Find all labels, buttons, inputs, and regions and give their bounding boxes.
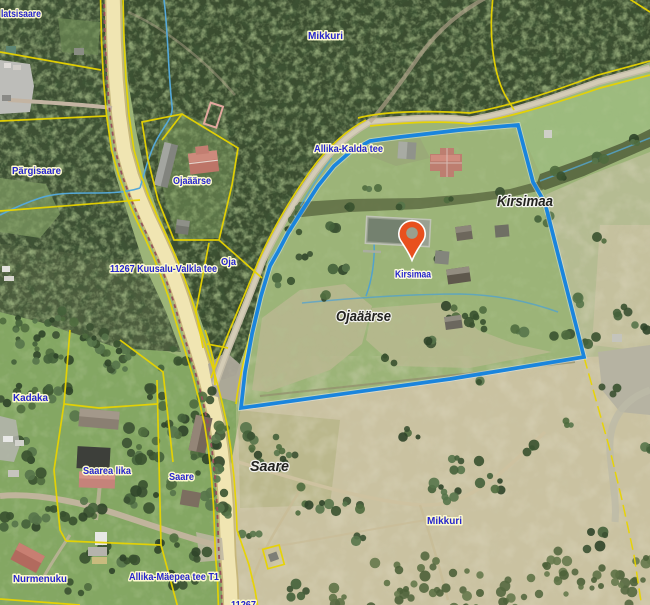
svg-text:Pärgisaare: Pärgisaare [12, 165, 61, 177]
svg-text:Kirsimaa: Kirsimaa [497, 193, 553, 210]
svg-text:Saarea lika: Saarea lika [83, 465, 131, 477]
svg-text:Ojaäärse: Ojaäärse [336, 308, 391, 325]
svg-text:11267: 11267 [231, 599, 256, 605]
svg-text:Nurmenuku: Nurmenuku [13, 573, 67, 585]
svg-text:Saare: Saare [169, 471, 194, 483]
svg-text:Allika-Kalda tee: Allika-Kalda tee [314, 143, 383, 155]
svg-text:Mikkuri: Mikkuri [308, 30, 343, 42]
svg-text:Oja: Oja [221, 256, 236, 268]
svg-text:Kirsimaa: Kirsimaa [395, 269, 431, 281]
svg-text:Saare: Saare [250, 458, 289, 475]
svg-text:Kadaka: Kadaka [13, 392, 48, 404]
svg-text:Allika-Mäepea tee T1: Allika-Mäepea tee T1 [129, 571, 219, 583]
svg-text:Mikkuri: Mikkuri [427, 515, 462, 527]
svg-text:Ojaäärse: Ojaäärse [173, 175, 211, 187]
svg-text:latsisaare: latsisaare [1, 8, 41, 20]
svg-text:11267 Kuusalu-Valkla tee: 11267 Kuusalu-Valkla tee [110, 263, 217, 275]
